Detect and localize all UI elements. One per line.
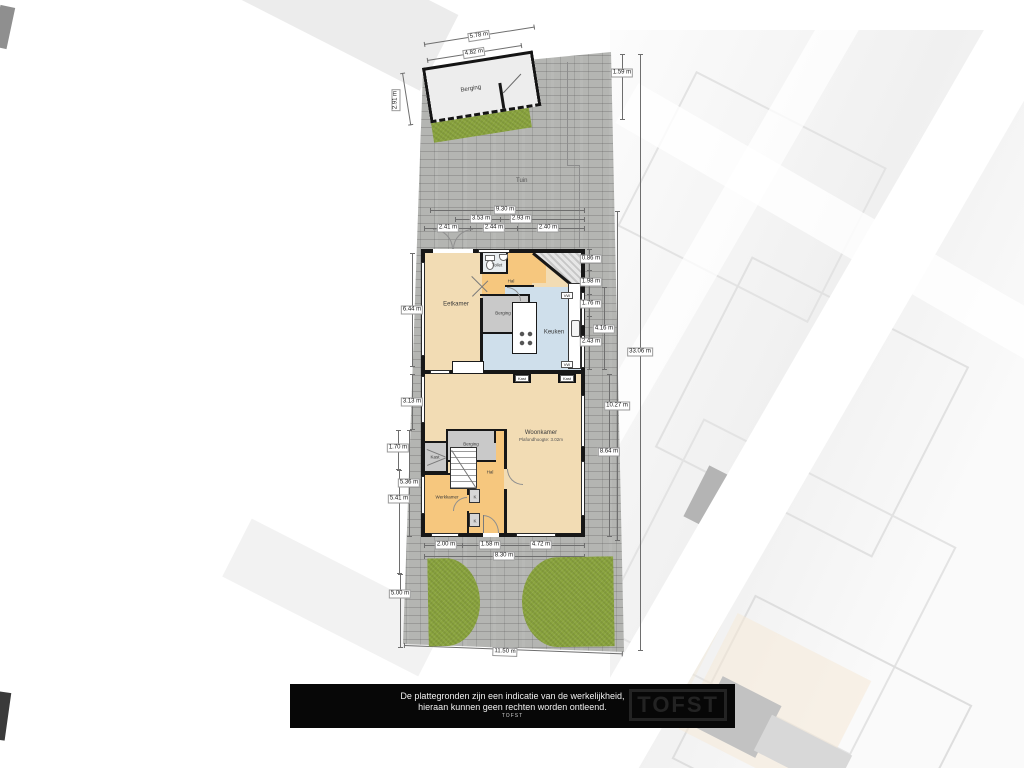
appliance-chip: VW [561,361,573,368]
wall [504,429,507,469]
dimension-tick [517,226,518,231]
dim-label-right-r2: 1.98 m [580,278,602,287]
dim-label-top-c1: 2.41 m [437,224,459,233]
dim-label-right-r4: 4.16 m [593,325,615,334]
kast-box: Kast [558,374,576,383]
appliance-chip: VW [561,292,573,299]
dimension-tick [587,270,592,271]
wall [504,489,507,533]
dimension-tick [587,294,592,295]
dimension-line [400,574,401,648]
window [478,249,510,253]
room-label-toilet: Toilet [492,262,503,269]
room-label-woonkamer: Woonkamer Plafondhoogte: 3.02m [511,430,571,443]
woonkamer-ceiling-height: Plafondhoogte: 3.02m [511,437,571,443]
dim-label-right-r5: 2.43 m [580,338,602,347]
footer-bar: De plattegronden zijn een indicatie van … [290,684,735,728]
closet-box: K [469,489,480,503]
window [581,292,585,326]
dim-label-shed-outer: 5.78 m [467,30,490,42]
window [421,476,425,514]
sink-icon [571,320,580,337]
stairs-walkline [451,450,477,489]
dim-label-left-l3: 5.36 m [398,479,420,488]
dimension-tick [500,217,501,222]
dim-label-plot-top-right: 1.59 m [611,69,633,78]
wall [480,294,530,296]
door-swing-line [503,74,521,94]
window [581,461,585,516]
dim-label-left-l2: 1.70 m [387,444,409,453]
dimension-tick [462,543,463,548]
garden-label-tuin: Tuin [516,178,527,184]
tofst-logo: TOFST [629,689,727,721]
dim-label-top-c3: 2.40 m [537,224,559,233]
window [431,533,459,537]
kast-chip-label: Kast [560,375,574,382]
wall [480,253,483,274]
window [581,395,585,447]
dim-label-right-lower: 8.64 m [598,448,620,457]
dim-label-right-r3: 1.76 m [580,300,602,309]
dim-label-left-garden: 5.00 m [389,590,411,599]
room-label-kast-onder: Kast [430,454,439,461]
drain-line [567,62,568,165]
dim-label-top-total: 9.30 m [494,206,516,215]
kitchen-island [512,302,537,354]
dim-label-shed-depth: 2.91 m [392,89,401,111]
room-label-werkkamer: Werkkamer [436,494,459,501]
door-swing-line [483,515,484,533]
window [516,533,556,537]
dim-label-bottom-b2: 1.58 m [479,541,501,550]
room-label-berging-boven: Berging [495,310,511,317]
closet-label: K [473,494,476,501]
dimension-line [622,54,623,120]
dim-label-plot-bottom: 11.50 m [492,647,518,657]
room-label-hal-boven: Hal [508,278,515,285]
wall [446,429,507,431]
door-opening [433,249,473,253]
dimension-tick [587,316,592,317]
garden-patch-right [521,556,615,648]
dim-label-plot-length: 33.06 m [627,348,653,357]
shed-label: Berging [460,85,482,95]
bay-window [452,361,484,374]
kast-chip-label: Kast [515,375,529,382]
wall [425,441,448,443]
entrance-opening [483,533,499,537]
room-label-berging-onder: Berging [463,441,479,448]
dim-label-bottom-b1: 2.00 m [435,541,457,550]
dimension-line [617,211,618,541]
room-label-hal-onder: Hal [487,469,494,476]
wall [494,431,496,443]
room-label-eetkamer: Eetkamer [443,302,469,309]
door-swing-arc [507,469,523,485]
closet-box: K [469,513,480,527]
room-label-keuken: Keuken [544,330,564,337]
dim-label-top-b2: 2.93 m [510,215,532,224]
window [430,370,450,374]
dim-label-left-upper: 6.44 m [401,306,423,315]
closet-label: K [473,518,476,525]
dimension-line [589,249,590,370]
kast-box: Kast [513,374,531,383]
dim-label-left-l1: 3.13 m [401,398,423,407]
hob-icon [518,329,534,349]
dim-label-right-long: 10.27 m [604,402,630,411]
wall [480,298,483,370]
house: VW VW Kast Kast [421,249,585,537]
dim-label-top-b1: 3.53 m [470,215,492,224]
wall [446,441,448,473]
floorplan-page: Tuin Berging 5.78 m 4.82 m 2.91 m 1.59 m… [0,0,1024,768]
wall [482,272,508,274]
drain-line [579,165,580,248]
dim-label-bottom-b3: 4.72 m [530,541,552,550]
dim-label-bottom-total: 8.30 m [493,552,515,561]
watermark-edge-mark-bottom [0,691,11,740]
dim-label-right-r1: 0.86 m [580,255,602,264]
stairs [450,447,477,489]
watermark-edge-mark-top [0,5,15,49]
wall [498,83,505,109]
woonkamer-name: Woonkamer [511,430,571,437]
dim-label-top-c2: 2.44 m [483,224,505,233]
dim-label-left-l4: 5.41 m [388,495,410,504]
